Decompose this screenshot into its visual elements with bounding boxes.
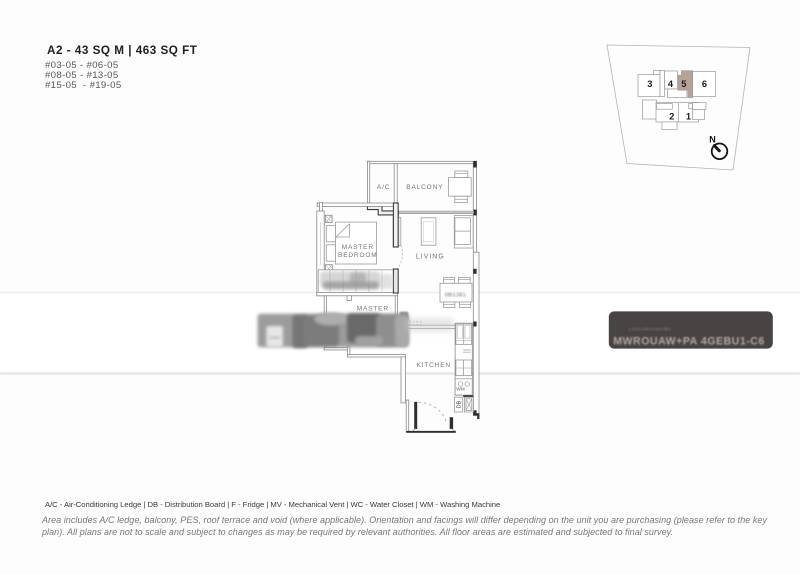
svg-text:1: 1 (686, 112, 691, 122)
svg-text:6: 6 (702, 79, 707, 89)
svg-text:DB: DB (457, 400, 463, 408)
svg-text:5: 5 (681, 79, 686, 89)
svg-text:MASTER: MASTER (357, 305, 389, 312)
svg-text:2: 2 (669, 112, 674, 122)
svg-text:0B13EL: 0B13EL (445, 292, 468, 298)
svg-text:LNtssWtrvmrtMs: LNtssWtrvmrtMs (629, 327, 671, 332)
svg-text:MWROUAW+PA 4GEBU1-C6: MWROUAW+PA 4GEBU1-C6 (613, 336, 765, 348)
svg-text:BEDROOM: BEDROOM (338, 252, 378, 259)
svg-text:A/C: A/C (377, 184, 390, 191)
svg-text:4: 4 (668, 79, 674, 89)
svg-text:LIVING: LIVING (416, 253, 445, 260)
svg-text:BALCONY: BALCONY (406, 184, 443, 191)
svg-text:3: 3 (647, 79, 652, 89)
svg-text:WM: WM (456, 386, 465, 391)
svg-text:KITCHEN: KITCHEN (416, 362, 450, 369)
svg-text:N: N (709, 135, 716, 145)
svg-text:MASTER: MASTER (342, 244, 374, 251)
